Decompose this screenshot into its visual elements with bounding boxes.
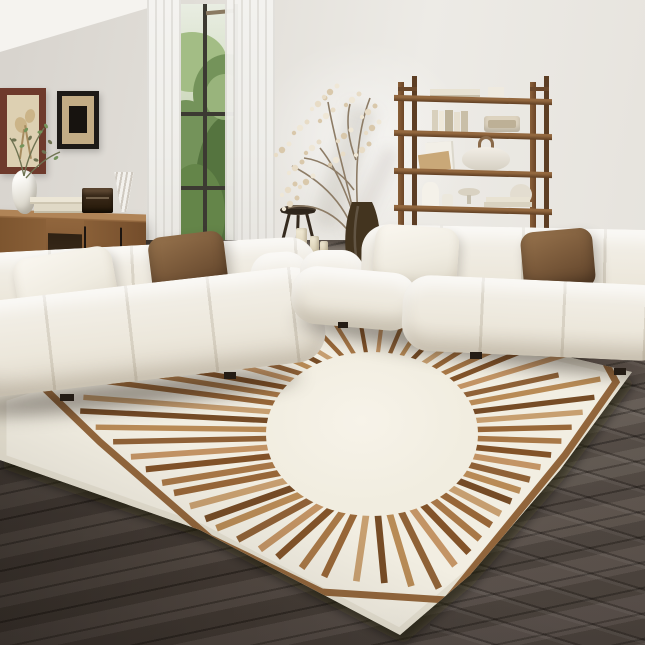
- rug-ray: [113, 439, 268, 442]
- rug-ray: [96, 427, 269, 429]
- sofa-right-seat-cushion: [289, 264, 420, 333]
- sofa-foot: [614, 368, 626, 375]
- sofa-foot: [470, 352, 482, 359]
- sofa-foot: [60, 394, 74, 401]
- sofa-right-seat-cushions: [401, 274, 645, 362]
- sofa-foot: [224, 372, 236, 379]
- rug-ray: [476, 439, 562, 442]
- living-room-scene: [0, 0, 645, 645]
- sofa-foot: [338, 322, 348, 328]
- rug-ray: [476, 427, 572, 429]
